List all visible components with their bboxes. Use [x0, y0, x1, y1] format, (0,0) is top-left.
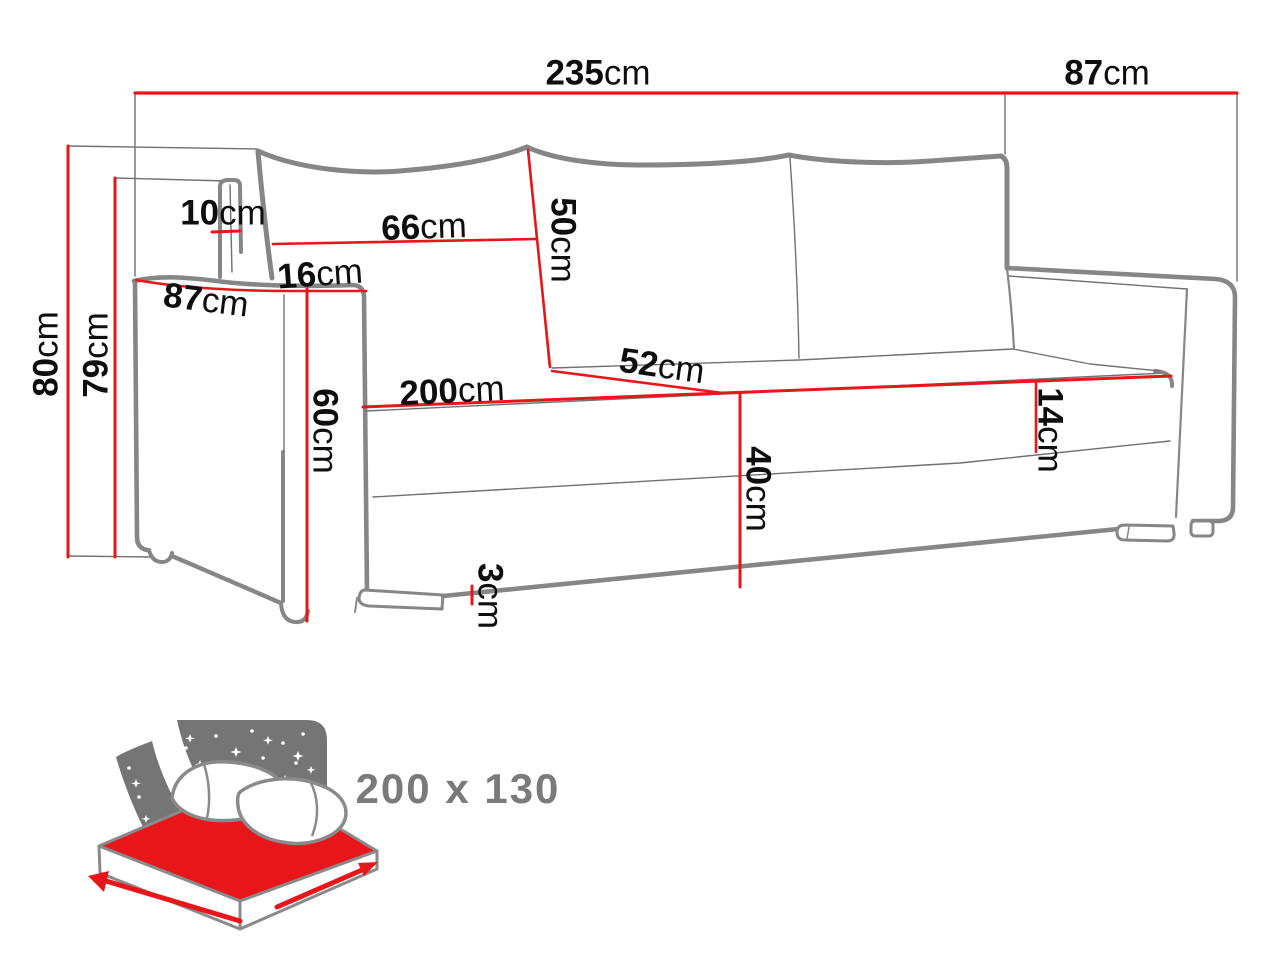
cushion-divider-2 [790, 158, 799, 358]
dim-back-cushion-height-label: 50cm [546, 197, 581, 283]
sleeping-area-label: 200 x 130 [356, 765, 561, 813]
dim-total-width-label: 235cm [545, 56, 650, 91]
bottom-rail-left [172, 556, 281, 603]
extension-line-frame-height [115, 178, 227, 181]
dim-total-height-label: 80cm [29, 311, 64, 397]
cushion2-top-edge [527, 147, 789, 165]
right-arm-inner-edge [1176, 289, 1187, 517]
cushion1-top-edge [258, 147, 527, 172]
right-small-leg [1191, 521, 1213, 536]
left-back-leg [149, 550, 172, 562]
diagram-line-art [0, 0, 1280, 960]
left-arm-outer-edge [135, 282, 147, 550]
dim-back-cushion-width-label: 66cm [381, 208, 468, 246]
cushion3-right-edge [1001, 156, 1007, 268]
dim-armrest-width-label: 16cm [276, 254, 364, 295]
dim-total-depth-label: 87cm [1064, 56, 1150, 91]
dim-back-post-width-label: 10cm [180, 196, 266, 231]
seat-back-right-edge [1013, 349, 1160, 371]
arrow-width-head [88, 871, 109, 892]
extension-line-total-height [68, 146, 257, 149]
dim-armrest-depth-label: 87cm [161, 277, 250, 322]
extension-line-floor [67, 556, 150, 557]
front-leg-bar-foot [355, 598, 357, 612]
dim-frame-height-label: 79cm [79, 312, 114, 398]
bottom-rail-long [443, 529, 1118, 596]
cushion3-top-edge [789, 155, 1001, 163]
front-left-leg [281, 603, 308, 622]
dim-cushion-thickness-label: 14cm [1033, 387, 1068, 473]
dim-total-width-value: 235 [545, 54, 603, 93]
sleeping-function-icon [88, 720, 378, 929]
dim-ground-clearance-label: 3cm [473, 563, 508, 629]
dim-armrest-height-label: 60cm [308, 388, 343, 474]
dim-seat-width-label: 200cm [399, 371, 506, 411]
right-leg-bar [1117, 525, 1174, 541]
front-leg-bar [359, 590, 443, 609]
dim-seat-height-label: 40cm [741, 446, 776, 532]
sofa-dimension-diagram: 235cm 87cm 80cm 79cm 10cm 66cm 50cm 16cm… [0, 0, 1280, 960]
cushion3-lower-right-edge [1007, 268, 1014, 349]
